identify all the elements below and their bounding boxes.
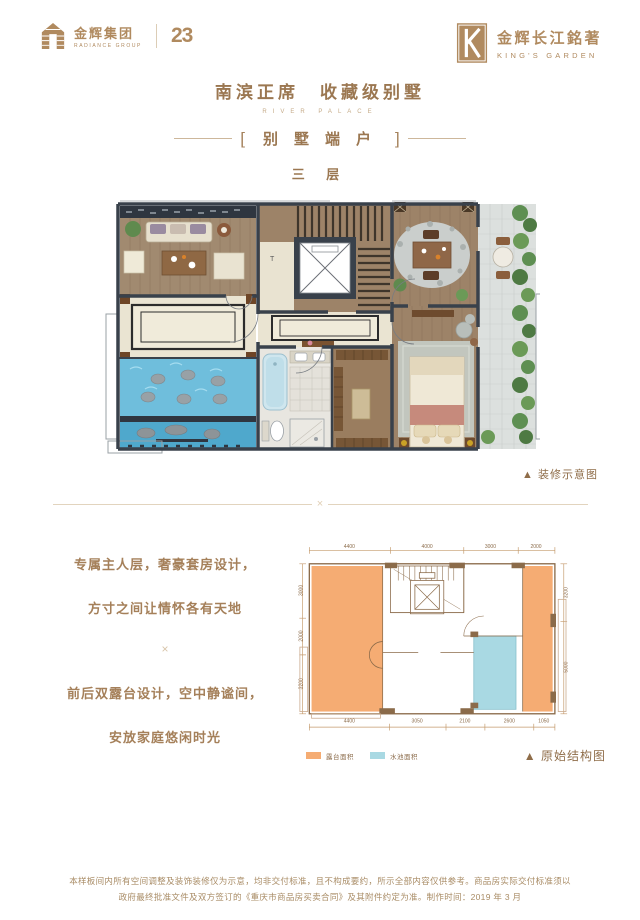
svg-text:5000: 5000 <box>564 661 570 672</box>
decorated-caption: ▲ 装修示意图 <box>522 469 598 481</box>
desc-line-3: 前后双露台设计，空中静谧间， <box>34 683 296 702</box>
description-block: 专属主人层，奢豪套房设计， 方寸之间让情怀各有天地 × 前后双露台设计，空中静谧… <box>34 536 296 771</box>
desc-line-2: 方寸之间让情怀各有天地 <box>34 598 296 617</box>
structural-pool <box>474 636 516 709</box>
desc-line-1: 专属主人层，奢豪套房设计， <box>34 554 296 573</box>
elevator <box>294 237 356 299</box>
title-block: 南滨正席 收藏级别墅 RIVER PALACE [ 别墅端户 ] 三 层 <box>0 78 640 183</box>
svg-text:3000: 3000 <box>299 585 305 596</box>
svg-text:1050: 1050 <box>538 719 549 725</box>
structural-floor-plan: 4400 4000 3000 2000 4400 3050 2100 2600 … <box>296 536 596 736</box>
desc-line-4: 安放家庭悠闲时光 <box>34 727 296 746</box>
svg-text:2000: 2000 <box>530 544 541 550</box>
main-title: 南滨正席 收藏级别墅 <box>0 78 640 103</box>
tatami-room <box>120 294 256 362</box>
radiance-logo-en: RADIANCE GROUP <box>74 43 142 49</box>
svg-text:3050: 3050 <box>412 719 423 725</box>
svg-text:4000: 4000 <box>422 544 433 550</box>
svg-text:T: T <box>270 256 275 263</box>
bracket-line-left <box>174 138 232 139</box>
bedroom <box>392 306 478 449</box>
svg-text:4400: 4400 <box>344 719 355 725</box>
logo-separator <box>156 24 157 48</box>
bracket-text: 别墅端户 <box>263 128 387 149</box>
decorated-caption-row: ▲ 装修示意图 <box>42 465 598 483</box>
floor-label: 三 层 <box>0 164 640 183</box>
disclaimer: 本样板间内所有空间调整及装饰装修仅为示意，均非交付标准，且不构成要约，所示全部内… <box>28 873 612 906</box>
legend-label-pool: 水池面积 <box>390 751 418 761</box>
radiance-logo-text: 金辉集团 RADIANCE GROUP <box>74 23 142 49</box>
structural-stairs <box>390 566 463 614</box>
kings-garden-cn: 金辉长江銘著 <box>497 27 602 48</box>
terrace <box>478 204 540 449</box>
anniversary-23-mark: 23 <box>171 24 192 48</box>
bracket-line-right <box>408 138 466 139</box>
svg-text:4400: 4400 <box>344 544 355 550</box>
radiance-house-icon <box>40 22 66 50</box>
bracket-open: [ <box>240 129 245 149</box>
living-room <box>120 206 256 296</box>
english-subtitle: RIVER PALACE <box>0 109 640 115</box>
structural-legend: 露台面积 水池面积 ▲ 原始结构图 <box>296 747 606 764</box>
decorated-plan-wrap: T <box>100 199 540 462</box>
kings-garden-en: KING'S GARDEN <box>497 51 602 60</box>
legend-label-terrace: 露台面积 <box>326 751 354 761</box>
desc-x-ornament: × <box>34 642 296 656</box>
svg-text:2600: 2600 <box>504 719 515 725</box>
disclaimer-line-2: 政府最终批准文件及双方签订的《重庆市商品房买卖合同》及其附件约定为准。制作时间：… <box>28 889 612 906</box>
kings-garden-emblem-icon <box>456 22 488 64</box>
brochure-page: 金辉集团 RADIANCE GROUP 23 金辉长江銘著 KING'S GAR… <box>0 0 640 920</box>
structural-terrace-left <box>312 566 383 712</box>
bracket-title: [ 别墅端户 ] <box>0 128 640 149</box>
header: 金辉集团 RADIANCE GROUP 23 金辉长江銘著 KING'S GAR… <box>0 0 640 64</box>
kings-garden-logo: 金辉长江銘著 KING'S GARDEN <box>456 22 602 64</box>
legend-swatch-pool <box>370 752 385 759</box>
walk-in-closet <box>332 347 392 449</box>
pool <box>120 358 256 449</box>
svg-text:3200: 3200 <box>564 587 570 598</box>
radiance-logo-cn: 金辉集团 <box>74 23 142 42</box>
svg-text:2000: 2000 <box>299 630 305 641</box>
structural-plan-block: 4400 4000 3000 2000 4400 3050 2100 2600 … <box>296 536 606 771</box>
decorated-floor-plan: T <box>100 199 540 457</box>
legend-swatch-terrace <box>306 752 321 759</box>
lower-section: 专属主人层，奢豪套房设计， 方寸之间让情怀各有天地 × 前后双露台设计，空中静谧… <box>34 536 606 771</box>
divider-x-ornament: × <box>317 498 323 510</box>
kings-garden-text: 金辉长江銘著 KING'S GARDEN <box>497 27 602 60</box>
study-room <box>392 202 478 306</box>
radiance-group-logo: 金辉集团 RADIANCE GROUP 23 <box>40 22 192 50</box>
svg-text:2100: 2100 <box>459 719 470 725</box>
structural-terrace-right <box>523 566 553 712</box>
bracket-close: ] <box>395 129 400 149</box>
hallway <box>258 312 392 347</box>
structural-caption: ▲ 原始结构图 <box>524 747 606 764</box>
svg-text:3000: 3000 <box>485 544 496 550</box>
section-divider: × <box>53 498 588 510</box>
disclaimer-line-1: 本样板间内所有空间调整及装饰装修仅为示意，均非交付标准，且不构成要约，所示全部内… <box>28 873 612 890</box>
bathroom <box>258 347 332 449</box>
